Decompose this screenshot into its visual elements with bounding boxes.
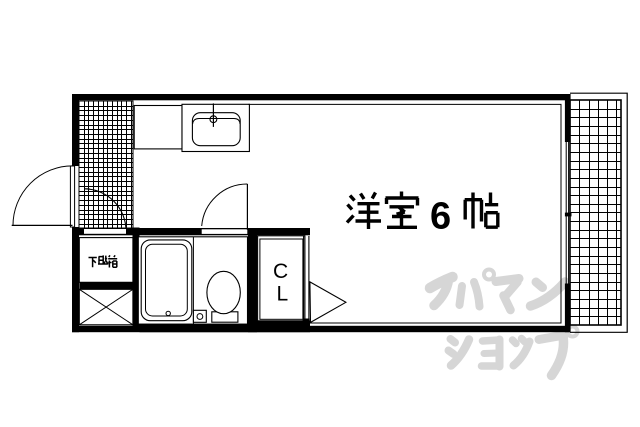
svg-text:L: L [277,283,289,306]
svg-text:C: C [273,260,288,283]
svg-text:6: 6 [430,196,451,238]
